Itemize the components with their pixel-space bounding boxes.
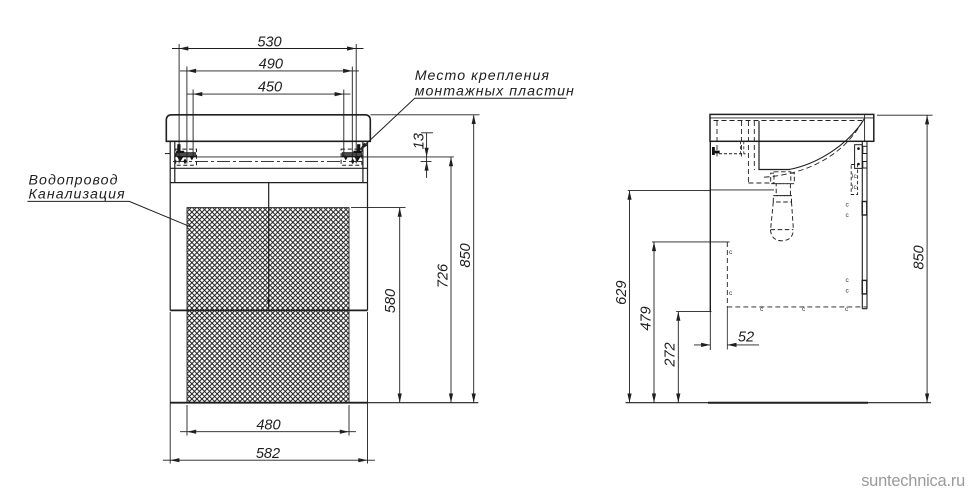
svg-text:480: 480 bbox=[256, 418, 280, 434]
svg-text:c: c bbox=[729, 249, 733, 256]
svg-text:c: c bbox=[729, 290, 733, 297]
svg-text:c: c bbox=[802, 306, 806, 313]
svg-text:lc: lc bbox=[852, 184, 857, 191]
svg-text:c: c bbox=[846, 202, 850, 209]
svg-text:suntechnica.ru: suntechnica.ru bbox=[861, 472, 965, 490]
svg-text:монтажных пластин: монтажных пластин bbox=[415, 84, 575, 100]
svg-text:850: 850 bbox=[458, 243, 474, 267]
svg-text:582: 582 bbox=[256, 446, 280, 462]
svg-text:c: c bbox=[846, 288, 850, 295]
svg-text:52: 52 bbox=[738, 329, 754, 345]
svg-text:629: 629 bbox=[614, 281, 630, 305]
svg-text:13: 13 bbox=[411, 133, 427, 149]
svg-text:490: 490 bbox=[259, 57, 283, 73]
svg-text:479: 479 bbox=[638, 306, 654, 330]
svg-text:lc: lc bbox=[852, 173, 857, 180]
svg-text:850: 850 bbox=[912, 245, 928, 269]
svg-text:726: 726 bbox=[435, 263, 451, 288]
svg-text:530: 530 bbox=[257, 34, 281, 50]
svg-text:c: c bbox=[846, 277, 850, 284]
svg-text:c: c bbox=[846, 212, 850, 219]
svg-text:272: 272 bbox=[663, 342, 679, 367]
svg-text:Канализация: Канализация bbox=[29, 186, 126, 202]
svg-text:Место крепления: Место крепления bbox=[415, 68, 550, 84]
svg-text:580: 580 bbox=[383, 289, 399, 313]
svg-text:450: 450 bbox=[258, 80, 282, 96]
